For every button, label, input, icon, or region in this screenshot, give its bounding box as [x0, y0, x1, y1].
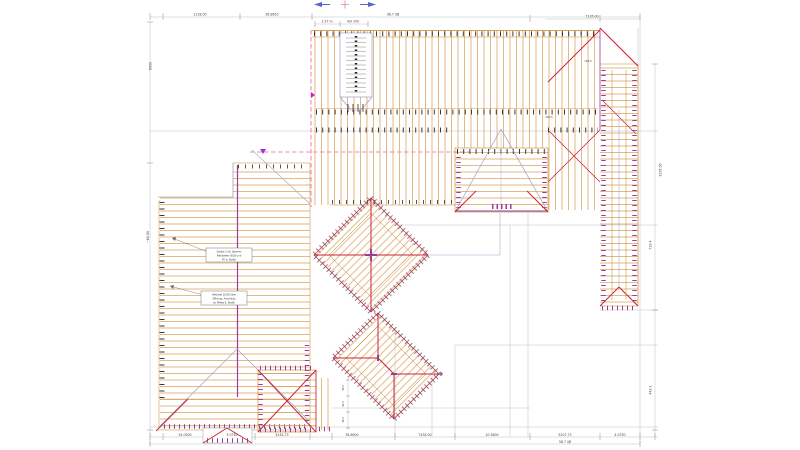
dim-top-right: 7135.00 — [585, 15, 598, 19]
label-valley: 140.5 — [545, 115, 553, 119]
dim-left-1: 6000 — [149, 62, 153, 70]
dim-bottom-5: 7434.00 — [418, 433, 431, 437]
note2-line1: Wechsel 10/20 über — [212, 294, 236, 297]
dim-shaft-1: 1.97 m — [321, 20, 332, 24]
dim-top-2: 36.8610 — [265, 13, 278, 17]
note2-line2: Öffnung, Anschluss — [212, 298, 236, 301]
dim-right-1: 3135.00 — [659, 163, 663, 176]
dim-bottom-4: 36.8900 — [345, 433, 358, 437]
pavilion-roof-upper — [314, 198, 500, 312]
note1-line3: Pf. lt. Statik — [222, 259, 236, 262]
dim-right-2: 733.4 — [649, 240, 653, 249]
pyramid-roof — [258, 368, 350, 432]
dim-top-1: 1128.00 — [193, 13, 206, 17]
registration-mark-right-icon — [360, 2, 376, 7]
roof-framing-plan: Gaube 1 üb. Sparren Kehlbalken 8/18 und … — [0, 0, 800, 450]
dim-top-total: 98.7 l/B — [387, 13, 399, 17]
note1-line2: Kehlbalken 8/18 und — [217, 255, 242, 258]
drawing-page: Gaube 1 üb. Sparren Kehlbalken 8/18 und … — [0, 0, 800, 450]
dim-bottom-1: 34.0500 — [178, 433, 191, 437]
dim-bottom-2: 3.0750 — [226, 433, 237, 437]
dim-shaft-2: 4/0 100 — [347, 20, 359, 24]
registration-mark-center-icon — [341, 1, 349, 9]
dim-right-3: 443.1 — [649, 385, 653, 394]
dim-bottom-8: 4.0750 — [614, 433, 625, 437]
dim-bottom-6: 10.5600 — [485, 433, 498, 437]
pavilion-roof-lower — [333, 313, 439, 419]
registration-mark-left-icon — [314, 2, 330, 7]
label-pyr-3: 36.2 — [341, 417, 345, 423]
dim-left-2: ~60.00 — [146, 231, 150, 243]
right-wing — [600, 28, 638, 308]
note2-line3: an Pfette lt. Statik — [213, 302, 235, 305]
dim-bottom-3: 5245.73 — [275, 433, 288, 437]
dim-bottom-7: 5207.73 — [558, 433, 571, 437]
label-purlin: 146.5 — [584, 59, 592, 63]
registration-marks — [314, 1, 376, 9]
note1-line1: Gaube 1 üb. Sparren — [217, 251, 242, 254]
dim-bottom-total: 58.7 l/B — [559, 440, 571, 444]
label-pyr-2: 42.0 — [341, 401, 345, 407]
label-pyr-1: 38.5 — [341, 385, 345, 391]
